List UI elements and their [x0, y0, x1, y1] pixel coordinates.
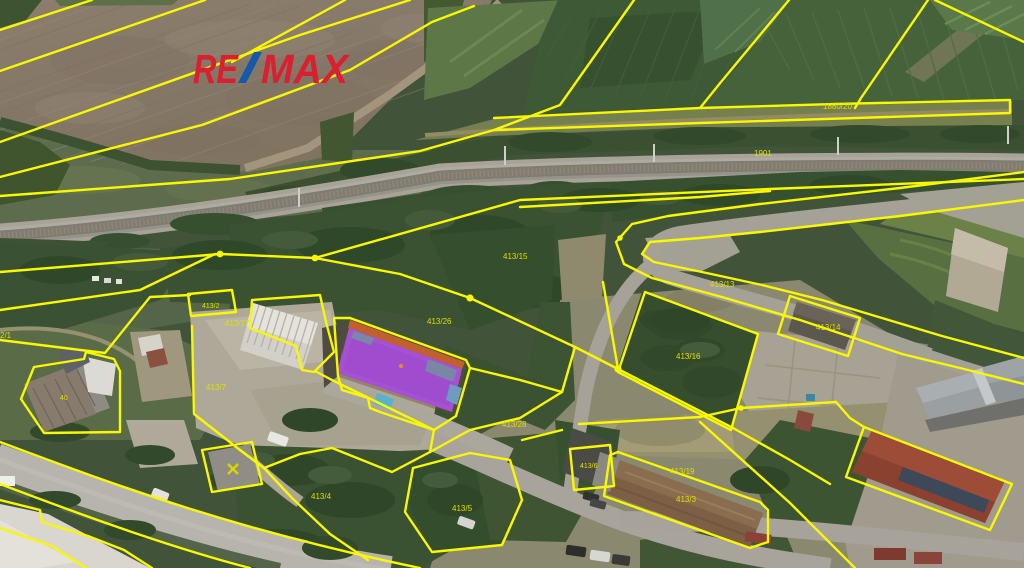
svg-text:1880/20: 1880/20 — [823, 102, 852, 111]
svg-text:2/1: 2/1 — [0, 331, 12, 340]
svg-text:413/7: 413/7 — [206, 383, 227, 392]
svg-text:413/19: 413/19 — [670, 467, 695, 476]
svg-text:413/15: 413/15 — [503, 252, 528, 261]
svg-text:1901: 1901 — [754, 149, 772, 158]
svg-text:413/6: 413/6 — [580, 463, 598, 470]
svg-text:413/4: 413/4 — [311, 492, 332, 501]
svg-text:413/3: 413/3 — [676, 495, 697, 504]
svg-text:413/2: 413/2 — [202, 303, 220, 310]
svg-text:40: 40 — [60, 395, 68, 402]
svg-text:413/5: 413/5 — [452, 504, 473, 513]
svg-text:413/26: 413/26 — [427, 317, 452, 326]
svg-text:413/28: 413/28 — [502, 420, 527, 429]
svg-text:MAX: MAX — [261, 46, 351, 92]
svg-text:413/27: 413/27 — [225, 319, 250, 328]
svg-text:RE: RE — [193, 46, 239, 92]
svg-text:413/13: 413/13 — [710, 280, 735, 289]
svg-text:413/14: 413/14 — [816, 323, 841, 332]
svg-text:413/16: 413/16 — [676, 352, 701, 361]
